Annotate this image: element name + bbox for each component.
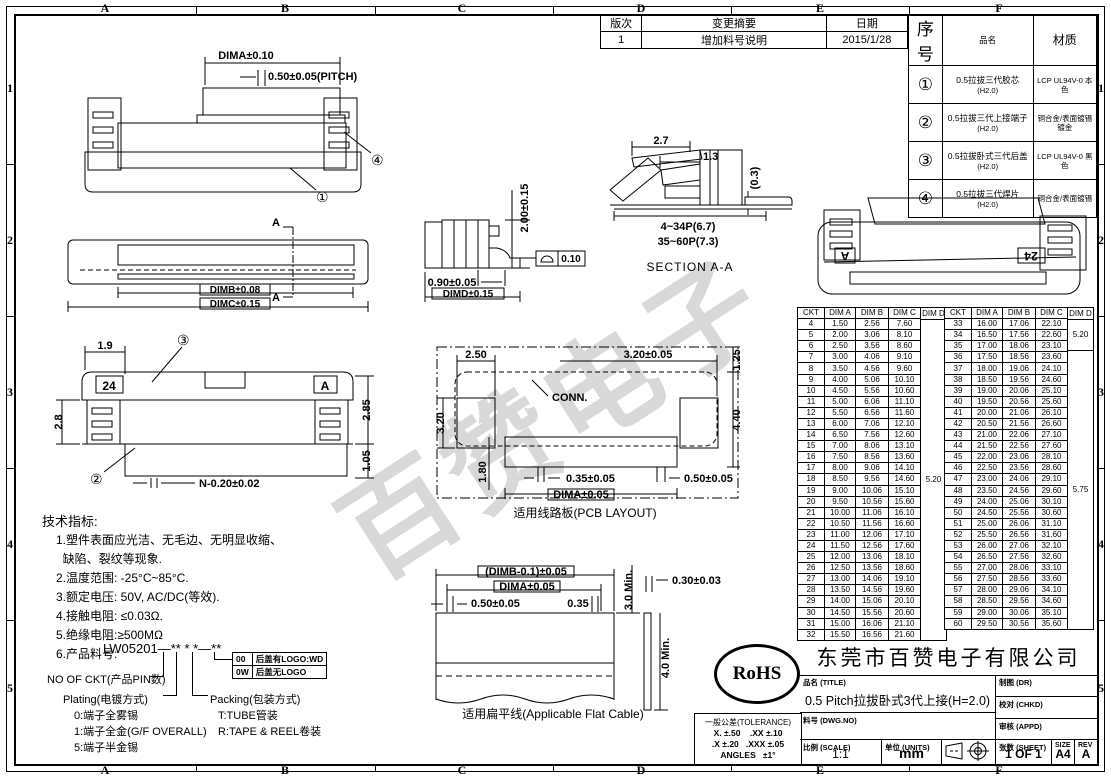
dwgno-cell: 料号 (DWG.NO) [800,713,996,740]
table-cell: 12.00 [825,552,856,563]
notes-title: 技术指标: [42,512,362,531]
bom-item-name: 0.5拉拔三代焊片 (H2.0) [942,180,1033,218]
dim-1-3: 1.3 [703,151,718,163]
pin-count-marking: 24 [102,379,116,393]
table-cell: 28.10 [1036,452,1068,463]
table-cell: 44 [945,441,972,452]
table-cell: 9.00 [825,485,856,496]
dim-0-35: 0.35±0.05 [566,473,615,485]
bom-item-spec: (H2.0) [943,162,1033,171]
table-cell: 6.56 [856,407,889,418]
table-row: 4522.0023.0628.10 [945,452,1068,463]
table-row: 2813.5014.5619.60 [798,585,921,596]
table-cell: 4.56 [856,363,889,374]
table-cell: 23.50 [972,485,1003,496]
table-cell: 22 [798,518,825,529]
chkd-cell: 校对 (CHKD) [996,697,1097,719]
rohs-logo: RoHS [714,644,800,704]
flatness-tolerance: 0.10 [561,254,581,265]
col-ckt: CKT [945,308,972,319]
table-cell: 30.56 [1003,618,1036,629]
table-cell: 8.60 [889,341,921,352]
leader-line [192,695,208,696]
table-cell: 19.10 [889,574,921,585]
table-row: 3014.5015.5620.60 [798,607,921,618]
logo-code: 0W [233,666,253,679]
table-cell: 8.56 [856,452,889,463]
table-cell: 55 [945,563,972,574]
table-row: 4120.0021.0626.10 [945,407,1068,418]
table-row: 5828.5029.5634.60 [945,596,1068,607]
bom-item-spec: (H2.0) [943,86,1033,95]
table-cell: 17.00 [972,341,1003,352]
table-cell: 3.06 [856,330,889,341]
table-row: 4622.5023.5628.60 [945,463,1068,474]
table-row: 3115.0016.0621.10 [798,618,921,629]
bom-item-no: ① [909,66,943,104]
table-cell: 13.50 [825,585,856,596]
table-row: 5225.5026.5631.60 [945,529,1068,540]
table-cell: 15.06 [856,596,889,607]
table-cell: 41 [945,407,972,418]
table-cell: 25.56 [1003,507,1036,518]
col-dim-a: DIM A [825,308,856,319]
bom-item-no: ③ [909,142,943,180]
bom-name-header: 品名 [942,15,1033,66]
logo-code: 00 [233,653,253,666]
bom-item-spec: (H2.0) [943,200,1033,209]
table-row: 2210.5011.5616.60 [798,518,921,529]
rev-col-header: 版次 [601,15,642,32]
table-row: 157.008.0613.10 [798,441,921,452]
table-cell: 33.10 [1036,563,1068,574]
table-row: 188.509.5614.60 [798,474,921,485]
leader-line [150,676,164,677]
table-cell: 12.56 [856,540,889,551]
table-row: 3919.0020.0625.10 [945,385,1068,396]
date-value: 2015/1/28 [826,32,907,49]
table-cell: 8.00 [825,463,856,474]
table-cell: 15.00 [825,618,856,629]
balloon-4: ④ [371,152,384,168]
packing-label: Packing(包装方式) [210,691,300,707]
pcb-caption: 适用线路板(PCB LAYOUT) [513,505,656,520]
leader-line [192,652,193,696]
table-cell: 21.00 [972,430,1003,441]
dim-0-50: 0.50±0.05 [684,473,733,485]
table-cell: 24.10 [1036,363,1068,374]
table-row: 5527.0028.0633.10 [945,563,1068,574]
drawing-sheet: AABBCCDDEEFF1122334455 百赞电子 版次 变更摘要 日期 1… [0,0,1111,778]
table-cell: 16 [798,452,825,463]
table-cell: 27.00 [972,563,1003,574]
bom-material-header: 材质 [1033,15,1096,66]
table-row: 2512.0013.0618.10 [798,552,921,563]
bom-item-name-text: 0.5拉拔卧式三代后盖 [943,151,1033,162]
dim-1-05: 1.05 [361,450,373,471]
table-cell: 13.00 [825,574,856,585]
dim-3-20-v: 3.20 [435,412,447,433]
table-cell: 28.00 [972,585,1003,596]
table-cell: 22.50 [972,463,1003,474]
table-cell: 58 [945,596,972,607]
part-number-code: LW05201 [103,641,158,656]
tolerance-line: .X ±.20 .XXX ±.05 [695,739,801,750]
third-angle-projection-icon [942,740,994,762]
table-cell: 18.06 [1003,341,1036,352]
dim-dima-cable: DIMA±0.05 [499,581,555,593]
table-cell: 23.00 [972,474,1003,485]
table-cell: 42 [945,418,972,429]
iso-pin-count-marking: 24 [1024,249,1038,263]
table-cell: 19.50 [972,396,1003,407]
table-cell: 17 [798,463,825,474]
table-cell: 46 [945,463,972,474]
table-cell: 7.50 [825,452,856,463]
table-row: 5125.0026.0631.10 [945,518,1068,529]
table-cell: 16.50 [972,330,1003,341]
table-cell: 14.60 [889,474,921,485]
note-line: 4.接触电阻: ≤0.03Ω. [42,607,362,626]
bom-item-name: 0.5拉拔卧式三代后盖 (H2.0) [942,142,1033,180]
table-cell: 8.10 [889,330,921,341]
part-number-mask: —** * *—** [158,641,222,656]
appd-label: 审核 (APPD) [999,721,1042,732]
table-cell: 20.56 [1003,396,1036,407]
table-cell: 22.00 [972,452,1003,463]
table-cell: 1.50 [825,319,856,330]
table-cell: 35 [945,341,972,352]
tolerance-title: 一般公差(TOLERANCE) [695,717,801,728]
dim-4-0-min: 4.0 Min. [660,638,672,678]
table-cell: 59 [945,607,972,618]
table-cell: 14.50 [825,607,856,618]
col-dim-b: DIM B [1003,308,1036,319]
table-row: 104.505.5610.60 [798,385,921,396]
dim-dimc: DIMC±0.15 [210,299,261,310]
table-cell: 28.06 [1003,563,1036,574]
table-cell: 29.56 [1003,596,1036,607]
table-row: 83.504.569.60 [798,363,921,374]
table-cell: 22.10 [1036,319,1068,330]
table-cell: 12.60 [889,430,921,441]
table-cell: 10.56 [856,496,889,507]
table-cell: 24.56 [1003,485,1036,496]
dim-1-9: 1.9 [97,340,112,352]
table-cell: 3.56 [856,341,889,352]
rev-value: 1 [601,32,642,49]
table-cell: 30 [798,607,825,618]
table-cell: 29.00 [972,607,1003,618]
table-cell: 27.60 [1036,441,1068,452]
table-cell: 15.60 [889,496,921,507]
pin-range-high: 35~60P(7.3) [658,236,719,248]
balloon-1: ① [316,189,329,205]
dim-3-0-min: 3.0 Min. [623,570,635,610]
table-cell: 51 [945,518,972,529]
table-cell: 20.50 [972,418,1003,429]
dim-dima-pcb: DIMA±0.05 [553,489,609,501]
table-cell: 18.50 [972,374,1003,385]
table-cell: 18 [798,474,825,485]
bom-item-name-text: 0.5拉拔三代胶芯 [943,75,1033,86]
table-cell: 31.10 [1036,518,1068,529]
bom-table: 序号 品名 材质 ① 0.5拉拔三代胶芯 (H2.0) LCP UL94V-0 … [908,14,1097,218]
tolerance-line: X. ±.50 .XX ±.10 [695,728,801,739]
pin-range-low: 4~34P(6.7) [661,221,716,233]
ckt-count-label: NO OF CKT(产品PIN数) [47,671,166,687]
date-col-header: 日期 [826,15,907,32]
table-cell: 29 [798,596,825,607]
table-cell: 18.56 [1003,352,1036,363]
bottom-view: 24 A 1.9 2.8 2.85 1.05 N-0.20±0.02 [53,332,374,490]
table-cell: 14.06 [856,574,889,585]
table-cell: 2.56 [856,319,889,330]
table-cell: 26 [798,563,825,574]
table-cell: 30.60 [1036,507,1068,518]
table-row: 62.503.568.60 [798,341,921,352]
table-cell: 19.60 [889,585,921,596]
table-cell: 3.50 [825,363,856,374]
table-cell: 21 [798,507,825,518]
section-view: 2.7 1.3 (0.3) 4~34P(6.7) 35~60P(7.3) SEC… [610,135,792,274]
table-cell: 40 [945,396,972,407]
table-cell: 11 [798,396,825,407]
table-cell: 32.10 [1036,540,1068,551]
table-cell: 28.50 [972,596,1003,607]
table-cell: 16.10 [889,507,921,518]
table-cell: 19.06 [1003,363,1036,374]
table-row: 2914.0015.0620.10 [798,596,921,607]
table-cell: 16.60 [889,518,921,529]
table-cell: 7.00 [825,441,856,452]
table-row: 5426.5027.5632.60 [945,552,1068,563]
table-cell: 26.10 [1036,407,1068,418]
bom-item-spec: (H2.0) [943,124,1033,133]
table-cell: 12 [798,407,825,418]
table-cell: 36 [945,352,972,363]
bom-header-row: 序号 品名 材质 [909,15,1097,66]
table-cell: 20.00 [972,407,1003,418]
bom-item-material: 铜合金/表面镀锡 [1033,180,1096,218]
table-row: 199.0010.0615.10 [798,485,921,496]
chkd-label: 校对 (CHKD) [999,699,1043,710]
table-cell: 4.06 [856,352,889,363]
table-cell: 10.00 [825,507,856,518]
logo-desc: 后盖无LOGO [252,666,327,679]
table-cell: 27.56 [1003,552,1036,563]
table-cell: 45 [945,452,972,463]
table-cell: 7.06 [856,418,889,429]
product-title: 0.5 Pitch拉拔卧式3代上接(H=2.0) [800,690,995,709]
table-cell: 14 [798,430,825,441]
size-cell: SIZE A4 [1052,740,1075,764]
table-cell: 29.50 [972,618,1003,629]
table-cell: 25.06 [1003,496,1036,507]
col-dim-a: DIM A [972,308,1003,319]
bom-row: ③ 0.5拉拔卧式三代后盖 (H2.0) LCP UL94V-0 黑色 [909,142,1097,180]
section-letter-bottom: A [272,292,280,304]
bom-item-name-text: 0.5拉拔三代焊片 [943,189,1033,200]
table-row: 4421.5022.5627.60 [945,441,1068,452]
table-cell: 16.06 [856,618,889,629]
revision-header-row: 版次 变更摘要 日期 [601,15,908,32]
table-cell: 13.60 [889,452,921,463]
table-cell: 26.50 [972,552,1003,563]
iso-polarity-marking: A [840,249,849,263]
scale-value: 1:1 [800,747,881,761]
table-cell: 23.10 [1036,341,1068,352]
conn-label: CONN. [552,392,587,404]
table-row: 5929.0030.0635.10 [945,607,1068,618]
dim-pitch: 0.50±0.05(PITCH) [268,71,358,83]
bom-item-name: 0.5拉拔三代胶芯 (H2.0) [942,66,1033,104]
table-cell: 21.56 [1003,418,1036,429]
bom-row: ② 0.5拉拔三代上接端子 (H2.0) 铜合金/表面镀锡 镀金 [909,104,1097,142]
rev-cell: REV A [1075,740,1097,764]
table-cell: 9.10 [889,352,921,363]
table-cell: 37 [945,363,972,374]
leader-line [163,652,164,676]
table-cell: 49 [945,496,972,507]
dim-1-80: 1.80 [477,461,489,482]
table-cell: 54 [945,552,972,563]
section-label: SECTION A-A [646,260,733,274]
col-ckt: CKT [798,308,825,319]
bom-item-material: LCP UL94V-0 黑色 [1033,142,1096,180]
units-value: mm [882,745,941,761]
table-row: 5728.0029.0634.10 [945,585,1068,596]
table-cell: 9 [798,374,825,385]
table-cell: 11.10 [889,396,921,407]
flat-cable-view: (DIMB-0.1)±0.05 DIMA±0.05 0.50±0.05 0.35… [431,565,721,721]
tolerance-line: ANGLES ±1° [695,750,801,761]
table-cell: 14.56 [856,585,889,596]
dim-2-85: 2.85 [361,399,373,420]
dim-4-40: 4.40 [731,409,743,430]
dr-cell: 制图 (DR) [996,675,1097,697]
sheet-cell: 张数 (SHEET) 1 OF 1 [996,740,1052,764]
table-cell: 27.06 [1003,540,1036,551]
table-cell: 22.06 [1003,430,1036,441]
table-cell: 11.50 [825,540,856,551]
dim-dimd: DIMD±0.15 [443,289,494,300]
table-cell: 20.10 [889,596,921,607]
table-cell: 11.00 [825,529,856,540]
dim-d-value: 5.20 [1068,320,1093,351]
table-row: 3617.5018.5623.60 [945,352,1068,363]
table-cell: 6.06 [856,396,889,407]
table-cell: 12.10 [889,418,921,429]
table-cell: 50 [945,507,972,518]
table-cell: 3.00 [825,352,856,363]
logo-desc: 后盖有LOGO:WD [252,653,327,666]
table-cell: 13.06 [856,552,889,563]
table-cell: 11.60 [889,407,921,418]
appd-cell: 审核 (APPD) [996,719,1097,740]
table-cell: 20.06 [1003,385,1036,396]
table-row: 5024.5025.5630.60 [945,507,1068,518]
table-cell: 20.60 [889,607,921,618]
bom-item-no: ② [909,104,943,142]
table-cell: 26.56 [1003,529,1036,540]
table-cell: 35.60 [1036,618,1068,629]
table-row: 4823.5024.5629.60 [945,485,1068,496]
dr-label: 制图 (DR) [999,677,1032,688]
table-cell: 60 [945,618,972,629]
table-cell: 21.10 [889,618,921,629]
table-row: 209.5010.5615.60 [798,496,921,507]
table-cell: 25.10 [1036,385,1068,396]
table-row: 115.006.0611.10 [798,396,921,407]
table-cell: 56 [945,574,972,585]
table-cell: 26.00 [972,540,1003,551]
table-row: 3416.5017.5622.60 [945,330,1068,341]
table-cell: 4.00 [825,374,856,385]
table-cell: 9.50 [825,496,856,507]
dim-d-value: 5.20 [921,320,946,640]
dim-0-3: (0.3) [749,166,761,189]
table-cell: 4 [798,319,825,330]
table-cell: 5.06 [856,374,889,385]
table-cell: 52 [945,529,972,540]
table-cell: 17.56 [1003,330,1036,341]
table-cell: 9.60 [889,363,921,374]
dim-dimb: DIMB±0.08 [210,285,261,296]
table-cell: 29.10 [1036,474,1068,485]
table-cell: 10.50 [825,518,856,529]
cable-caption: 适用扁平线(Applicable Flat Cable) [462,707,643,721]
table-row: 4019.5020.5625.60 [945,396,1068,407]
table-cell: 17.50 [972,352,1003,363]
table-row: 4723.0024.0629.10 [945,474,1068,485]
table-cell: 9.06 [856,463,889,474]
table-cell: 14.00 [825,596,856,607]
table-cell: 17.60 [889,540,921,551]
polarity-marking: A [321,379,330,393]
table-row: 4321.0022.0627.10 [945,430,1068,441]
side-view: 2.00±0.15 0.90±0.05 DIMD±0.15 0.10 [425,184,585,302]
table-cell: 22.56 [1003,441,1036,452]
bom-item-no: ④ [909,180,943,218]
title-cell: 品名 (TITLE) 0.5 Pitch拉拔卧式3代上接(H=2.0) [800,675,996,713]
dim-0-50-cable: 0.50±0.05 [471,598,520,610]
table-cell: 10.06 [856,485,889,496]
table-cell: 25.50 [972,529,1003,540]
table-cell: 21.50 [972,441,1003,452]
balloon-2: ② [90,471,103,487]
col-dim-b: DIM B [856,308,889,319]
sheet-value: 1 OF 1 [996,747,1051,761]
table-cell: 8 [798,363,825,374]
table-cell: 21.06 [1003,407,1036,418]
dwgno-label: 料号 (DWG.NO) [803,715,857,726]
plating-options: 0:端子全雾锡 1:端子全金(G/F OVERALL) 5:端子半金锡 [74,708,207,756]
dim-0-90: 0.90±0.05 [428,277,477,289]
table-cell: 18.10 [889,552,921,563]
table-cell: 27.10 [1036,430,1068,441]
table-row: 94.005.0610.10 [798,374,921,385]
table-row: 3818.5019.5624.60 [945,374,1068,385]
table-cell: 19 [798,485,825,496]
table-cell: 27 [798,574,825,585]
pcb-layout-view: CONN. 2.50 3.20±0.05 1.25 3.20 4.40 1.80… [435,347,743,520]
table-row: 146.507.5612.60 [798,430,921,441]
table-cell: 12.50 [825,563,856,574]
table-row: 3718.0019.0624.10 [945,363,1068,374]
table-cell: 33.60 [1036,574,1068,585]
summary-col-header: 变更摘要 [642,15,826,32]
